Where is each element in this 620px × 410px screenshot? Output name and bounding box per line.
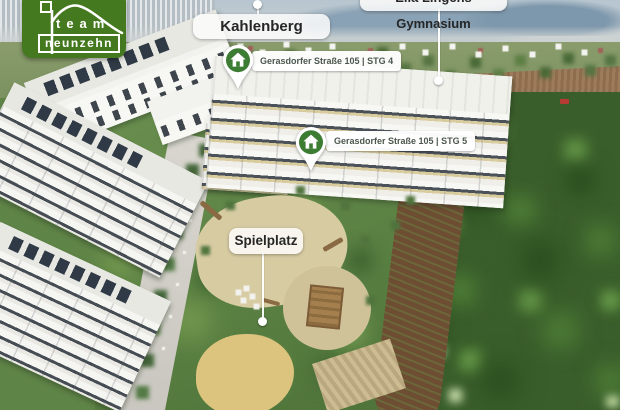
logo-neunzehn-box: neunzehn: [38, 34, 120, 53]
map-pin-stg4: [221, 44, 255, 91]
team-neunzehn-logo: team neunzehn: [22, 0, 126, 58]
map-pin-stg5: [294, 126, 328, 173]
kahlenberg-marker-dot: [253, 0, 262, 9]
spielplatz-marker-dot: [258, 317, 267, 326]
address-label-stg5: Gerasdorfer Straße 105 | STG 5: [326, 131, 475, 151]
playground-sand: [196, 334, 294, 410]
address-label-stg4: Gerasdorfer Straße 105 | STG 4: [252, 51, 401, 71]
spielplatz-leader-line: [262, 253, 264, 319]
listing-photo: team neunzehn Kahlenberg Ella Lingens Gy…: [0, 0, 620, 410]
spielplatz-label: Spielplatz: [229, 228, 303, 254]
logo-team-text: team: [56, 16, 110, 31]
red-car: [560, 99, 569, 104]
playground-objects: [0, 0, 1, 1]
wooden-tower: [306, 284, 344, 329]
gymnasium-label: Ella Lingens Gymnasium: [360, 0, 507, 11]
gymnasium-marker-dot: [434, 76, 443, 85]
kahlenberg-label: Kahlenberg: [193, 14, 330, 39]
